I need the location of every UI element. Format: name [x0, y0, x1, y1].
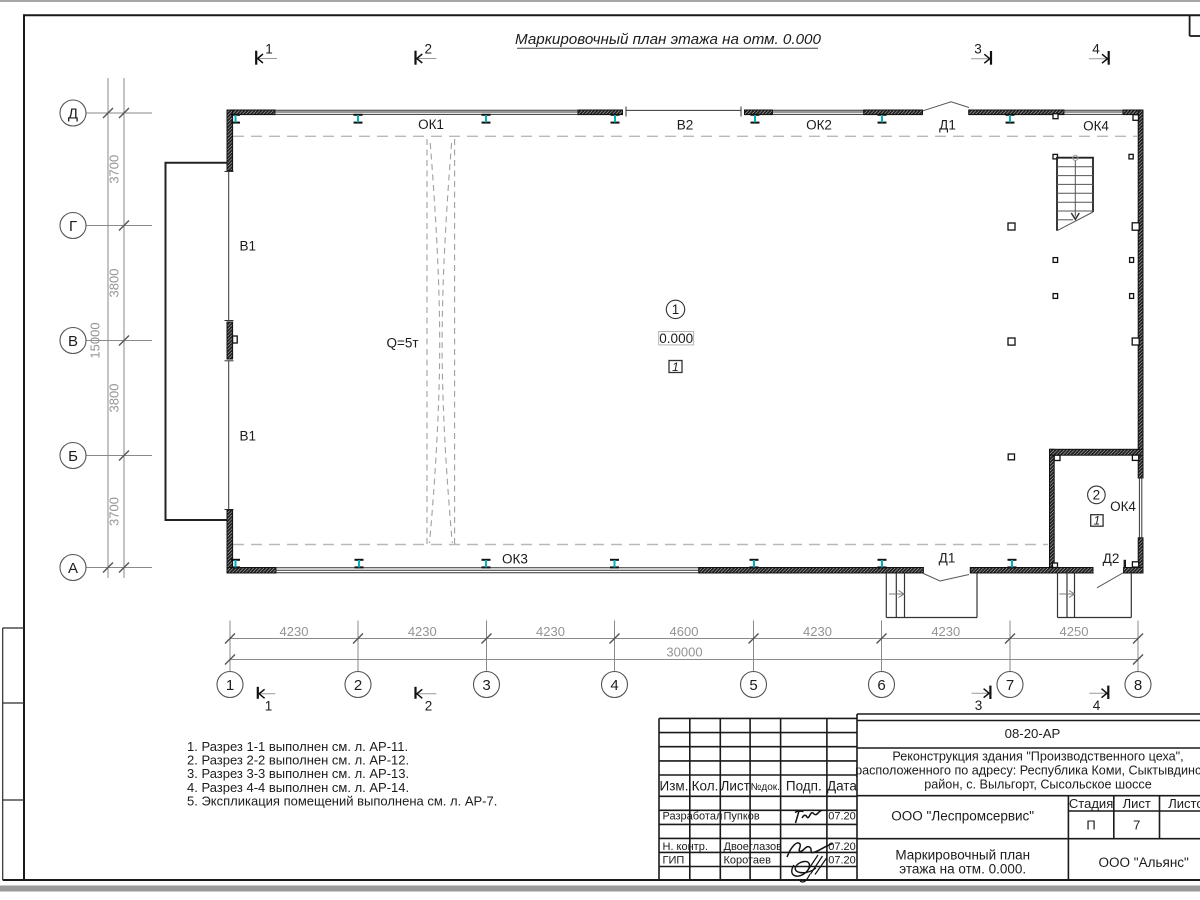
svg-text:7: 7	[1006, 677, 1014, 694]
svg-text:07.20: 07.20	[828, 810, 856, 822]
svg-text:Г: Г	[69, 218, 77, 235]
svg-text:1: 1	[672, 360, 679, 374]
svg-text:Б: Б	[68, 448, 78, 465]
svg-text:В1: В1	[240, 239, 257, 254]
svg-text:4230: 4230	[931, 624, 960, 639]
svg-text:П: П	[1086, 818, 1095, 833]
svg-text:ОК4: ОК4	[1083, 118, 1109, 133]
svg-text:5: 5	[749, 677, 757, 694]
svg-text:4230: 4230	[408, 624, 437, 639]
svg-text:6: 6	[877, 677, 885, 694]
svg-text:В: В	[68, 333, 78, 350]
svg-text:А: А	[68, 560, 78, 577]
svg-text:Кол.: Кол.	[692, 778, 719, 793]
svg-text:30000: 30000	[666, 645, 702, 660]
svg-text:Д1: Д1	[939, 117, 956, 132]
svg-text:8: 8	[1134, 677, 1142, 694]
svg-text:3700: 3700	[107, 497, 122, 526]
svg-text:Д2: Д2	[1103, 551, 1120, 566]
svg-text:ОК3: ОК3	[502, 552, 528, 567]
svg-text:4230: 4230	[536, 624, 565, 639]
svg-text:Маркировочный план: Маркировочный план	[895, 848, 1030, 863]
svg-text:В1: В1	[240, 429, 257, 444]
svg-text:Пупков: Пупков	[724, 810, 760, 822]
svg-text:Листов: Листов	[1168, 796, 1200, 811]
svg-text:Дата: Дата	[827, 778, 857, 793]
svg-text:ОК1: ОК1	[418, 117, 444, 132]
svg-text:расположенного по адресу: Респ: расположенного по адресу: Республика Ком…	[855, 763, 1200, 777]
svg-text:3: 3	[975, 698, 983, 713]
svg-text:Стадия: Стадия	[1069, 796, 1113, 811]
svg-text:1: 1	[265, 42, 273, 57]
svg-text:Д: Д	[68, 105, 78, 122]
svg-text:Д1: Д1	[939, 551, 956, 566]
svg-text:4: 4	[1093, 698, 1101, 713]
svg-text:3800: 3800	[107, 384, 122, 413]
svg-text:0.000: 0.000	[659, 331, 693, 346]
svg-text:район, с. Выльгорт, Сысольское: район, с. Выльгорт, Сысольское шоссе	[924, 778, 1151, 792]
svg-text:ОК2: ОК2	[806, 117, 832, 132]
svg-text:07.20: 07.20	[828, 855, 856, 867]
svg-text:ГИП: ГИП	[663, 855, 685, 867]
svg-text:2: 2	[1093, 488, 1101, 503]
svg-text:1: 1	[672, 302, 680, 317]
svg-text:Маркировочный план этажа на от: Маркировочный план этажа на отм. 0.000	[515, 31, 821, 48]
svg-text:Реконструкция здания "Производ: Реконструкция здания "Производственного …	[892, 749, 1183, 763]
svg-text:Двоеглазов: Двоеглазов	[724, 841, 783, 853]
svg-text:В2: В2	[677, 117, 694, 132]
svg-text:3700: 3700	[107, 155, 122, 184]
svg-text:2: 2	[425, 698, 433, 713]
svg-text:Подп.: Подп.	[786, 778, 822, 793]
svg-text:Лист: Лист	[1123, 796, 1151, 811]
svg-text:Коротаев: Коротаев	[724, 855, 772, 867]
svg-text:1: 1	[226, 677, 234, 694]
svg-text:3800: 3800	[107, 269, 122, 298]
svg-text:Изм.: Изм.	[660, 778, 689, 793]
svg-text:Разработал: Разработал	[663, 810, 723, 822]
svg-text:3: 3	[482, 677, 490, 694]
svg-text:3: 3	[974, 42, 982, 57]
svg-text:15000: 15000	[88, 322, 103, 358]
svg-text:4230: 4230	[803, 624, 832, 639]
svg-text:4: 4	[610, 677, 618, 694]
svg-text:Н. контр.: Н. контр.	[663, 841, 708, 853]
svg-text:ООО "Альянс": ООО "Альянс"	[1099, 855, 1189, 870]
svg-text:7: 7	[1133, 818, 1140, 833]
svg-text:ОК4: ОК4	[1110, 499, 1136, 514]
svg-text:08-20-АР: 08-20-АР	[1005, 726, 1061, 741]
svg-text:№док.: №док.	[751, 782, 780, 793]
svg-text:2: 2	[425, 42, 433, 57]
svg-text:1: 1	[1094, 514, 1101, 528]
svg-text:4600: 4600	[670, 624, 699, 639]
svg-text:ООО "Леспромсервис": ООО "Леспромсервис"	[891, 808, 1034, 823]
svg-text:2: 2	[354, 677, 362, 694]
svg-text:4: 4	[1092, 42, 1100, 57]
svg-text:Лист: Лист	[721, 778, 750, 793]
svg-text:1: 1	[265, 698, 273, 713]
svg-text:4230: 4230	[280, 624, 309, 639]
svg-text:4250: 4250	[1060, 624, 1089, 639]
svg-text:5. Экспликация помещений выпол: 5. Экспликация помещений выполнена см. л…	[187, 794, 497, 809]
svg-text:этажа на отм. 0.000.: этажа на отм. 0.000.	[899, 862, 1026, 877]
